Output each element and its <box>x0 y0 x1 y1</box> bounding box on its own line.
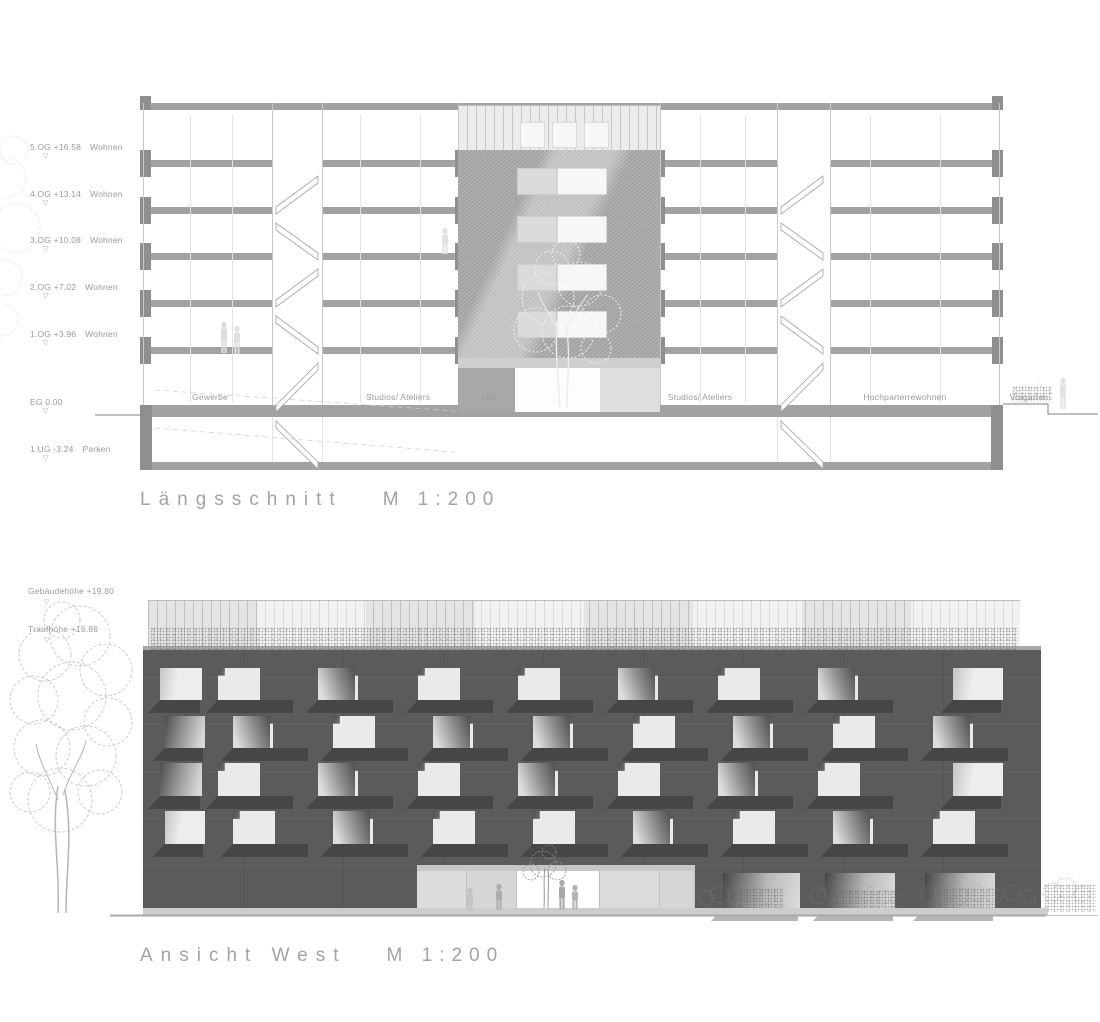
stair-flight <box>276 269 318 307</box>
level-datum-icon: ▽ <box>44 599 54 607</box>
level-label: 5.OG +16.58 Wohnen <box>30 142 140 152</box>
drop-shadow <box>621 748 708 761</box>
balcony-parapet-face <box>733 716 770 748</box>
person-figure <box>1060 378 1066 409</box>
room-label: Hochparterrewohnen <box>864 392 947 402</box>
tree-crown-icon <box>10 772 50 812</box>
roof-planting <box>150 627 1018 652</box>
balcony-parapet-face <box>533 716 570 748</box>
balcony-opening <box>218 763 295 796</box>
level-datum-icon: ▽ <box>44 637 54 645</box>
balcony-opening <box>418 668 495 700</box>
courtyard-attic-window <box>520 122 545 148</box>
tree-crown-icon <box>84 698 132 746</box>
shrub-planting <box>695 888 783 908</box>
basement-wall <box>140 405 152 470</box>
floor-slab <box>660 253 777 260</box>
loggia-opening <box>160 763 202 796</box>
courtyard-window <box>517 311 557 338</box>
drop-shadow <box>706 700 793 713</box>
glazing-panel <box>600 871 660 908</box>
wall-line <box>322 103 323 405</box>
balcony-opening <box>318 668 395 700</box>
tree-crown-icon <box>50 606 110 666</box>
drop-shadow <box>421 844 508 857</box>
drop-shadow <box>806 700 893 713</box>
floor-slab <box>143 160 272 167</box>
level-datum-icon: ▽ <box>43 408 53 416</box>
room-label: Vorgarten <box>1010 392 1049 402</box>
balcony-opening <box>718 763 795 796</box>
drop-shadow <box>206 700 293 713</box>
window-mullion-line <box>700 115 701 403</box>
window-opening <box>953 763 1003 796</box>
outer-wall-pier <box>140 197 151 224</box>
background-tree-sketch <box>0 136 28 164</box>
shrub-planting <box>1044 884 1096 912</box>
level-label: 3.OG +10.08 Wohnen <box>30 235 140 245</box>
balcony-opening <box>933 811 1010 844</box>
balcony-opening <box>318 763 395 796</box>
level-datum-icon: ▽ <box>43 200 53 208</box>
window-mullion-line <box>360 115 361 403</box>
wall-line <box>272 103 273 405</box>
window-mullion-line <box>420 115 421 403</box>
stair-flight <box>781 269 823 307</box>
level-label: 1.OG +3.96 Wohnen <box>30 329 140 339</box>
balcony-parapet-face <box>318 668 355 700</box>
room-label: Studios/ Ateliers <box>366 392 430 402</box>
balcony-opening <box>333 716 410 748</box>
drop-shadow <box>821 748 908 761</box>
balcony-opening <box>818 763 895 796</box>
stair-flight <box>276 316 318 354</box>
base-plinth <box>143 908 1048 915</box>
balcony-opening <box>533 811 610 844</box>
outer-wall-pier <box>992 243 1003 270</box>
glazing-panel <box>517 871 600 908</box>
basement-partition-line <box>830 417 831 462</box>
tree-trunk <box>65 790 69 913</box>
tree-crown-icon <box>78 770 122 814</box>
drop-shadow <box>721 748 808 761</box>
elevation-title: Ansicht WestM 1:200 <box>140 945 504 967</box>
window-mullion-line <box>232 115 233 403</box>
drop-shadow <box>521 748 608 761</box>
balcony-opening <box>618 668 695 700</box>
stair-flight <box>276 223 318 260</box>
tree-crown-icon <box>14 720 70 776</box>
balcony-opening <box>433 811 510 844</box>
shrub-planting <box>812 890 904 908</box>
courtyard-window <box>557 311 607 338</box>
level-datum-icon: ▽ <box>43 293 53 301</box>
drop-shadow <box>306 700 393 713</box>
floor-slab <box>322 160 458 167</box>
balcony-opening <box>233 811 310 844</box>
floor-slab <box>322 300 458 307</box>
stair-flight <box>781 223 823 260</box>
floor-slab <box>830 160 1000 167</box>
tree-crown-icon <box>38 662 106 730</box>
room-label: Studios/ Ateliers <box>668 392 732 402</box>
balcony-opening <box>518 668 595 700</box>
drop-shadow <box>321 844 408 857</box>
glazing-panel <box>467 871 517 908</box>
elevation-title-scale: M 1:200 <box>387 945 505 966</box>
balcony-parapet-face <box>333 811 370 844</box>
balcony-opening <box>333 811 410 844</box>
vorgarten-grade-line <box>1003 404 1098 414</box>
shrub-planting <box>922 888 1040 910</box>
elevation-title-name: Ansicht West <box>140 945 347 966</box>
balcony-opening <box>733 811 810 844</box>
drop-shadow <box>621 844 708 857</box>
section-title-scale: M 1:200 <box>383 489 501 510</box>
floor-slab <box>143 207 272 214</box>
balcony-parapet-face <box>518 763 555 796</box>
wall-line <box>999 103 1000 405</box>
floor-slab <box>830 300 1000 307</box>
level-label: EG 0.00 <box>30 397 140 407</box>
wall-line <box>143 103 144 405</box>
balcony-opening <box>633 811 710 844</box>
drop-shadow <box>206 796 293 809</box>
outer-wall-pier <box>992 197 1003 224</box>
outer-wall-pier <box>140 337 151 364</box>
window-opening <box>165 811 205 844</box>
courtyard-window <box>517 216 557 243</box>
courtyard-window <box>557 168 607 195</box>
architectural-drawing-sheet: LängsschnittM 1:200 Ansicht WestM 1:200 … <box>0 0 1100 1022</box>
floor-slab <box>660 160 777 167</box>
balcony-parapet-face <box>633 811 670 844</box>
tree-branch <box>63 740 86 795</box>
balcony-opening <box>618 763 695 796</box>
courtyard-opening <box>515 368 600 412</box>
wall-line <box>830 103 831 405</box>
entrance-glazing <box>417 865 695 908</box>
level-label: 4.OG +13.14 Wohnen <box>30 189 140 199</box>
courtyard-glazing <box>600 368 660 412</box>
balcony-opening <box>233 716 310 748</box>
balcony-opening <box>433 716 510 748</box>
level-label: 2.OG +7.02 Wohnen <box>30 282 140 292</box>
floor-slab <box>322 207 458 214</box>
background-tree-sketch <box>0 260 22 296</box>
balcony-parapet-face <box>833 811 870 844</box>
stair-flight <box>276 176 318 214</box>
drop-shadow <box>421 748 508 761</box>
outer-wall-pier <box>140 243 151 270</box>
floor-slab <box>143 300 272 307</box>
courtyard-attic-window <box>552 122 577 148</box>
balcony-opening <box>833 716 910 748</box>
drop-shadow <box>721 844 808 857</box>
window-opening <box>953 668 1003 700</box>
balcony-parapet-face <box>933 716 970 748</box>
drop-shadow <box>406 796 493 809</box>
drop-shadow <box>606 796 693 809</box>
level-datum-icon: ▽ <box>43 246 53 254</box>
window-mullion-line <box>745 115 746 403</box>
window-mullion-line <box>940 115 941 403</box>
drop-shadow <box>306 796 393 809</box>
stair-flight <box>781 316 823 354</box>
wall-line <box>777 103 778 405</box>
drop-shadow <box>921 844 1008 857</box>
tree-crown-icon <box>10 676 58 724</box>
hof-volume <box>458 368 515 412</box>
glazing-panel <box>417 871 467 908</box>
balcony-parapet-face <box>233 716 270 748</box>
drop-shadow <box>506 796 593 809</box>
room-label: Gewerbe <box>192 392 228 402</box>
balcony-parapet-face <box>433 716 470 748</box>
basement-floor-slab <box>140 462 1003 470</box>
drop-shadow <box>406 700 493 713</box>
balcony-parapet-face <box>718 763 755 796</box>
window-mullion-line <box>870 115 871 403</box>
basement-partition-line <box>322 417 323 462</box>
basement-partition-line <box>777 417 778 462</box>
courtyard-deck <box>458 358 660 368</box>
outer-wall-pier <box>992 150 1003 177</box>
outer-wall-pier <box>992 337 1003 364</box>
level-datum-icon: ▽ <box>43 340 53 348</box>
balcony-opening <box>533 716 610 748</box>
balcony-opening <box>718 668 795 700</box>
floor-slab <box>143 347 272 354</box>
height-mark-label: Traufhöhe +16.86 <box>28 624 148 634</box>
courtyard-window <box>517 168 557 195</box>
drop-shadow <box>921 748 1008 761</box>
courtyard-window <box>557 264 607 291</box>
balcony-parapet-face <box>818 668 855 700</box>
courtyard-window <box>557 216 607 243</box>
courtyard-window <box>517 264 557 291</box>
balcony-parapet-face <box>318 763 355 796</box>
tree-crown-icon <box>80 644 132 696</box>
balcony-parapet-face <box>618 668 655 700</box>
courtyard-attic-window <box>584 122 609 148</box>
drop-shadow <box>806 796 893 809</box>
stair-flight <box>781 176 823 214</box>
room-label: Hof <box>482 392 496 402</box>
drop-shadow <box>221 844 308 857</box>
balcony-opening <box>518 763 595 796</box>
section-title-name: Längsschnitt <box>140 489 343 510</box>
window-mullion-line <box>190 115 191 403</box>
roof-parapet <box>992 96 1003 110</box>
floor-slab <box>830 347 1000 354</box>
roof-parapet <box>140 96 151 110</box>
drop-shadow <box>521 844 608 857</box>
ramp-dashed-line <box>155 428 455 452</box>
section-title: LängsschnittM 1:200 <box>140 489 500 511</box>
window-opening <box>160 668 202 700</box>
background-tree-sketch <box>0 158 26 198</box>
balcony-opening <box>818 668 895 700</box>
balcony-opening <box>418 763 495 796</box>
balcony-opening <box>218 668 295 700</box>
drop-shadow <box>606 700 693 713</box>
floor-slab <box>660 207 777 214</box>
glazing-panel <box>660 871 695 908</box>
drop-shadow <box>506 700 593 713</box>
floor-slab <box>830 253 1000 260</box>
balcony-opening <box>833 811 910 844</box>
floor-slab <box>322 347 458 354</box>
floor-slab <box>660 300 777 307</box>
drop-shadow <box>706 796 793 809</box>
drop-shadow <box>321 748 408 761</box>
outer-wall-pier <box>140 290 151 317</box>
background-tree-sketch <box>0 304 18 336</box>
tree-branch <box>36 744 58 800</box>
tree-crown-icon <box>56 726 116 786</box>
floor-slab <box>322 253 458 260</box>
outer-wall-pier <box>140 150 151 177</box>
floor-slab <box>830 207 1000 214</box>
person-figure <box>442 228 448 254</box>
loggia-opening <box>165 716 205 748</box>
drop-shadow <box>821 844 908 857</box>
drop-shadow <box>221 748 308 761</box>
level-label: 1.UG -3.24 Parken <box>30 444 140 454</box>
floor-slab <box>660 347 777 354</box>
balcony-opening <box>733 716 810 748</box>
outer-wall-pier <box>992 290 1003 317</box>
tree-trunk <box>55 786 58 913</box>
basement-partition-line <box>272 417 273 462</box>
level-datum-icon: ▽ <box>43 153 53 161</box>
basement-wall <box>991 405 1003 470</box>
tree-crown-icon <box>28 768 92 832</box>
balcony-opening <box>633 716 710 748</box>
level-datum-icon: ▽ <box>43 455 53 463</box>
floor-slab <box>143 253 272 260</box>
balcony-opening <box>933 716 1010 748</box>
height-mark-label: Gebäudehöhe +19.80 <box>28 586 148 596</box>
